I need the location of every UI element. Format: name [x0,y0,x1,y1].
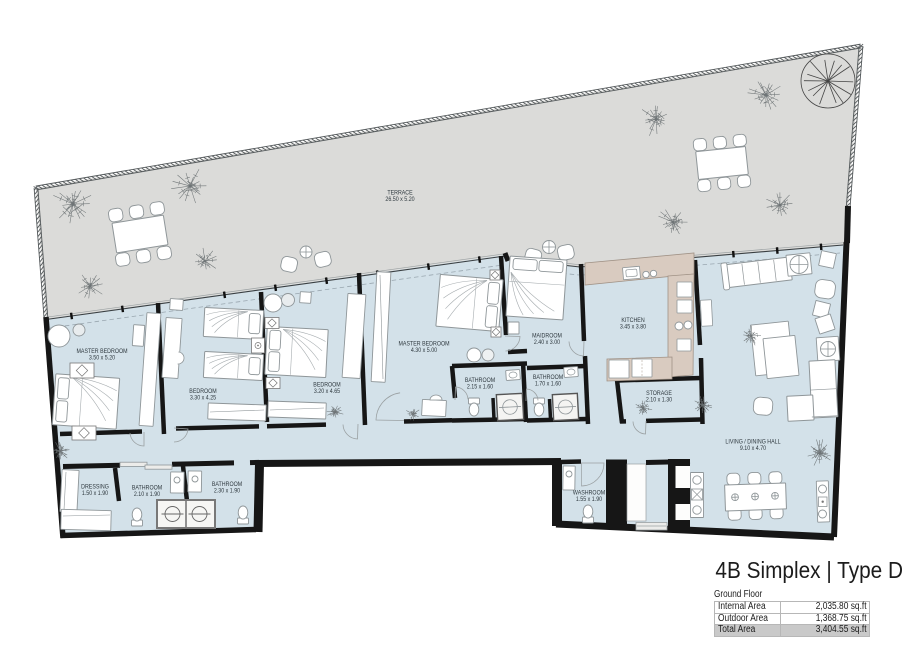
svg-text:STORAGE: STORAGE [646,391,672,398]
svg-text:BEDROOM: BEDROOM [189,389,217,396]
svg-text:BEDROOM: BEDROOM [313,382,341,389]
svg-text:MASTER BEDROOM: MASTER BEDROOM [76,349,127,356]
svg-text:3.45 x 3.80: 3.45 x 3.80 [620,324,647,331]
svg-text:2.10 x 1.30: 2.10 x 1.30 [646,397,673,404]
svg-text:9.10 x 4.70: 9.10 x 4.70 [740,446,767,453]
svg-text:2.40 x 3.00: 2.40 x 3.00 [534,340,561,347]
svg-text:2.15 x 1.60: 2.15 x 1.60 [467,384,494,391]
svg-text:MASTER BEDROOM: MASTER BEDROOM [398,341,449,348]
svg-text:KITCHEN: KITCHEN [621,318,644,325]
svg-text:LIVING / DINING HALL: LIVING / DINING HALL [725,439,781,446]
svg-text:3.50 x 5.20: 3.50 x 5.20 [89,355,116,362]
svg-text:BATHROOM: BATHROOM [465,378,495,385]
svg-text:1.50 x 1.90: 1.50 x 1.90 [82,491,109,498]
svg-text:TERRACE: TERRACE [387,190,412,197]
svg-text:WASHROOM: WASHROOM [573,490,605,497]
svg-text:DRESSING: DRESSING [81,484,109,491]
svg-text:BATHROOM: BATHROOM [533,375,563,382]
svg-text:2.10 x 1.90: 2.10 x 1.90 [134,492,161,499]
svg-text:2.30 x 1.90: 2.30 x 1.90 [214,488,241,495]
svg-text:1.55 x 1.90: 1.55 x 1.90 [576,497,603,504]
svg-text:MAIDROOM: MAIDROOM [532,333,562,340]
svg-text:3.30 x 4.25: 3.30 x 4.25 [190,395,217,402]
svg-text:4.30 x 5.00: 4.30 x 5.00 [411,348,438,355]
svg-text:26.50 x 5.20: 26.50 x 5.20 [385,197,415,204]
svg-text:BATHROOM: BATHROOM [212,482,242,489]
svg-text:BATHROOM: BATHROOM [132,485,162,492]
svg-text:1.70 x 1.60: 1.70 x 1.60 [535,381,562,388]
svg-text:3.20 x 4.65: 3.20 x 4.65 [314,389,341,396]
